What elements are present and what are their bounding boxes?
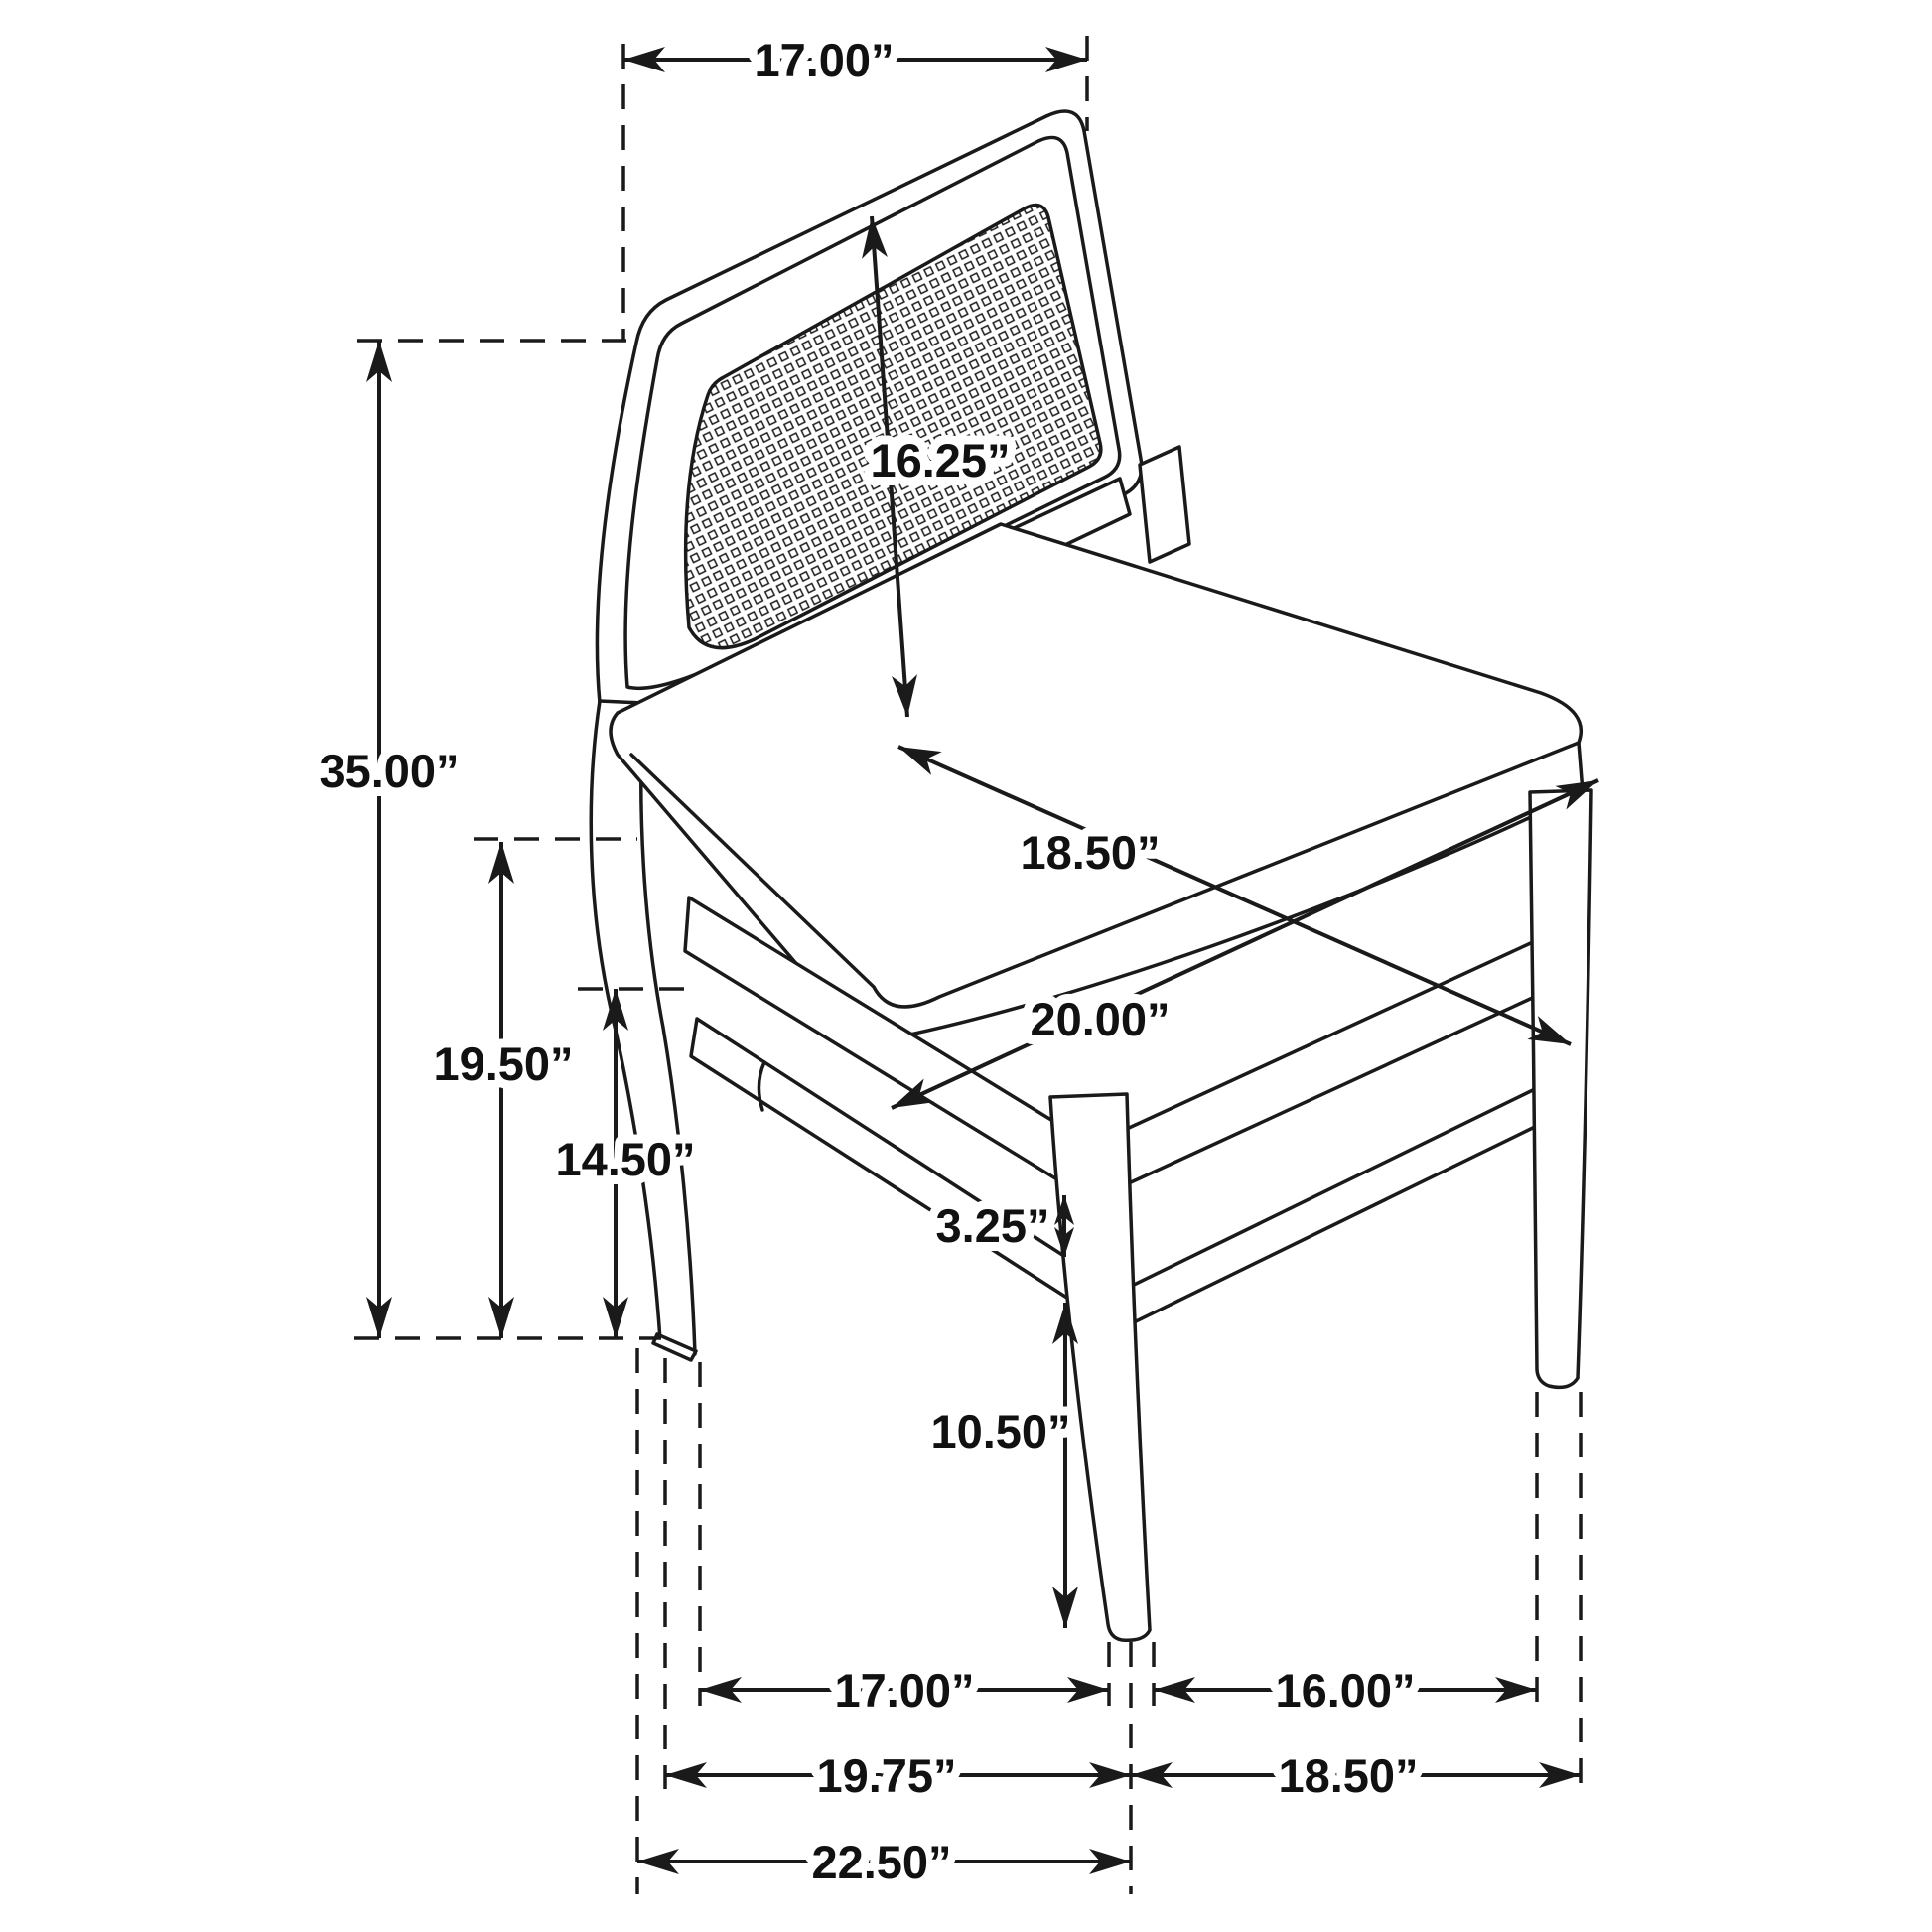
dim-overall-height: 35.00” [319,341,459,1338]
dim-front-leg-height-label: 10.50” [930,1405,1070,1457]
dim-width-at-floor: 18.50” [1131,1749,1581,1802]
dim-front-leg-height: 10.50” [930,1303,1070,1628]
dim-overall-height-label: 35.00” [319,745,459,797]
dim-stretcher-gap: 3.25” [936,1195,1064,1257]
dim-seat-width-label: 20.00” [1030,993,1170,1045]
dim-back-panel-height-label: 16.25” [870,434,1010,486]
chair-right-leg [1530,790,1591,1387]
dim-overall-depth: 22.50” [637,1836,1131,1888]
dim-leg-span-front: 16.00” [1154,1664,1537,1717]
dim-depth-to-center: 19.75” [665,1749,1131,1802]
dim-overall-depth-label: 22.50” [811,1836,951,1888]
dim-leg-span-side-label: 17.00” [834,1664,974,1717]
chair-front-apron [1090,941,1539,1199]
dim-stretcher-gap-label: 3.25” [936,1199,1050,1252]
dim-seat-height-label: 19.50” [433,1037,573,1090]
dim-depth-to-center-label: 19.75” [816,1749,956,1802]
dim-back-width: 17.00” [623,34,1087,86]
dim-seat-depth-label: 18.50” [1020,826,1160,879]
dim-leg-span-side: 17.00” [700,1664,1109,1717]
dim-seat-height: 19.50” [433,842,573,1338]
dim-apron-height-label: 14.50” [555,1133,695,1185]
dimension-diagram-page: 17.00” 35.00” 19.50” 14.50” 16.25” 18.50… [0,0,1932,1932]
dim-back-width-label: 17.00” [754,34,894,86]
dim-width-at-floor-label: 18.50” [1278,1749,1418,1802]
chair-rear-right-post [1140,447,1189,562]
chair-dimension-diagram: 17.00” 35.00” 19.50” 14.50” 16.25” 18.50… [0,0,1932,1932]
dim-leg-span-front-label: 16.00” [1275,1664,1415,1717]
